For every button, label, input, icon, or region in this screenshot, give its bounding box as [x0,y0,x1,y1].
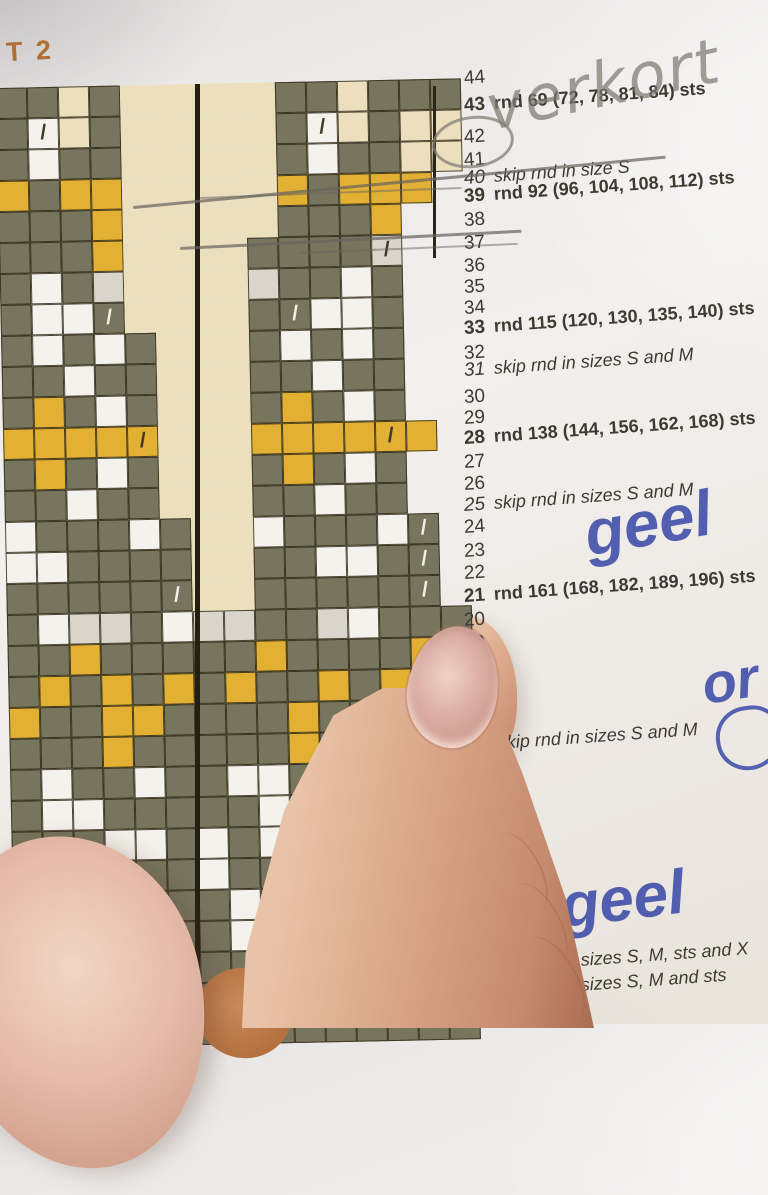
chart-cell [0,304,32,336]
chart-cell [160,518,192,550]
chart-cell [128,457,160,489]
chart-cell [244,82,276,114]
round-number: 21 [463,584,488,608]
chart-cell [378,545,410,577]
chart-cell [0,87,27,119]
round-number: 36 [463,254,488,278]
chart-cell [284,516,316,548]
chart-cell [62,272,94,304]
chart-cell [104,798,136,830]
chart-cell [221,455,253,487]
round-number: 28 [463,426,488,450]
chart-cell [214,145,246,177]
chart-cell [250,361,282,393]
chart-cell [132,643,164,675]
chart-cell [125,333,157,365]
chart-cell: / [127,426,159,458]
chart-cell [101,674,133,706]
chart-cell [0,242,31,274]
chart-cell [27,87,59,119]
chart-cell [185,239,217,271]
chart-cell [0,180,29,212]
chart-cell [6,552,38,584]
chart-cell [4,459,36,491]
chart-cell [378,576,410,608]
chart-cell [64,365,96,397]
chart-cell [126,395,158,427]
round-list-item: 24 [463,515,488,539]
round-number: 25 [463,493,488,517]
chart-cell [163,673,195,705]
chart-cell [196,765,228,797]
chart-cell [99,550,131,582]
chart-cell [94,333,126,365]
chart-cell [159,487,191,519]
chart-cell [317,639,349,671]
chart-cell [368,80,400,112]
chart-cell [379,607,411,639]
chart-cell [372,266,404,298]
chart-cell [124,271,156,303]
chart-cell [341,297,373,329]
chart-cell [197,796,229,828]
chart-cell [254,547,286,579]
chart-cell [307,143,339,175]
chart-cell [189,424,221,456]
chart-cell [35,459,67,491]
chart-cell [316,577,348,609]
round-number: 27 [463,450,488,474]
round-number: 38 [463,208,488,232]
chart-cell [254,578,286,610]
chart-cell [1,335,33,367]
chart-cell [31,273,63,305]
chart-cell [30,242,62,274]
chart-cell [255,640,287,672]
chart-cell [97,457,129,489]
chart-cell [157,363,189,395]
chart-cell [91,178,123,210]
chart-cell [31,304,63,336]
chart-panel-divider-line [195,84,200,1024]
chart-cell [131,612,163,644]
chart-cell [68,582,100,614]
chart-cell [282,423,314,455]
chart-cell [315,515,347,547]
chart-cell [341,266,373,298]
chart-cell [399,110,431,142]
chart-cell [133,736,165,768]
chart-cell [4,490,36,522]
chart-cell [164,704,196,736]
chart-cell [32,335,64,367]
chart-cell: / [306,112,338,144]
chart-cell [37,583,69,615]
decrease-slash-icon: / [292,303,298,324]
chart-cell [151,115,183,147]
chart-cell [38,614,70,646]
chart-cell [374,390,406,422]
chart-cell [11,800,43,832]
chart-cell [285,578,317,610]
chart-cell [61,241,93,273]
round-list-item: 26 [463,472,488,496]
chart-cell [250,392,282,424]
chart-cell: / [27,118,59,150]
chart-cell [34,428,66,460]
chart-cell [347,576,379,608]
round-instruction: rnd 138 (144, 156, 162, 168) sts [493,408,756,446]
chart-cell [342,328,374,360]
chart-cell [58,86,90,118]
chart-cell [5,521,37,553]
chart-cell [159,456,191,488]
round-list-item: 31skip rnd in sizes S and M [463,344,694,382]
round-number: 24 [463,515,488,539]
chart-cell [7,614,39,646]
round-number: 26 [463,472,488,496]
chart-cell [276,144,308,176]
chart-cell [126,364,158,396]
chart-cell [186,270,218,302]
chart-cell [166,797,198,829]
chart-cell [217,269,249,301]
chart-cell [184,208,216,240]
chart-cell [369,142,401,174]
chart-cell [64,396,96,428]
chart-cell [344,421,376,453]
chart-cell [36,521,68,553]
chart-cell [199,889,231,921]
chart-cell [37,552,69,584]
chart-cell [399,79,431,111]
chart-cell [281,361,313,393]
round-list-item: 30 [463,385,488,409]
chart-cell [0,211,30,243]
chart-cell [345,483,377,515]
decrease-slash-icon: / [421,548,427,569]
chart-cell [343,390,375,422]
chart-cell [60,210,92,242]
chart-cell [310,267,342,299]
chart-cell [155,301,187,333]
chart-cell [248,299,280,331]
chart-cell [40,738,72,770]
chart-cell [256,671,288,703]
round-number: 31 [463,358,488,382]
chart-cell [318,670,350,702]
chart-cell [313,422,345,454]
chart-cell [70,675,102,707]
round-number: 33 [463,316,488,340]
chart-cell [337,80,369,112]
round-number: 39 [463,184,488,208]
chart-cell [213,114,245,146]
chart-cell [73,799,105,831]
chart-cell [223,579,255,611]
chart-cell [197,827,229,859]
chart-cell [311,329,343,361]
chart-cell [279,268,311,300]
chart-right-border-line [433,86,436,258]
round-list-item: 21rnd 161 (168, 182, 189, 196) sts [463,566,756,608]
chart-cell [29,211,61,243]
chart-cell [337,111,369,143]
round-list-item: 35 [463,275,488,299]
chart-cell: / [161,580,193,612]
chart-cell [222,517,254,549]
chart-cell [96,426,128,458]
chart-title: T 2 [5,35,55,68]
chart-cell [223,548,255,580]
round-instruction: rnd 161 (168, 182, 189, 196) sts [493,566,756,604]
round-list-item: 23 [463,539,488,563]
chart-cell [275,82,307,114]
chart-cell [133,705,165,737]
chart-cell [39,645,71,677]
chart-cell [217,300,249,332]
chart-cell [71,706,103,738]
chart-cell [400,141,432,173]
chart-cell [101,643,133,675]
chart-cell [346,514,378,546]
chart-cell: / [409,575,441,607]
decrease-slash-icon: / [422,579,428,600]
chart-cell [90,147,122,179]
chart-cell [92,240,124,272]
chart-cell [213,83,245,115]
handwriting-pencil-word: verkort [479,24,727,145]
chart-cell [224,641,256,673]
chart-cell [28,149,60,181]
round-list-item: 22 [463,561,488,585]
chart-cell: / [375,421,407,453]
chart-cell [348,607,380,639]
chart-cell [258,764,290,796]
chart-cell [8,676,40,708]
chart-cell [102,736,134,768]
chart-cell: / [279,299,311,331]
chart-cell [3,428,35,460]
chart-cell [71,737,103,769]
chart-cell [370,204,402,236]
chart-cell [312,391,344,423]
round-instruction: skip rnd in sizes S and M [493,344,694,378]
chart-cell [244,113,276,145]
chart-cell [215,176,247,208]
photo-of-knitting-pattern-page: { "page": { "header": "T 2" }, "chart": … [0,0,768,1024]
chart-cell [161,549,193,581]
chart-cell [312,360,344,392]
chart-cell [220,424,252,456]
chart-cell [62,303,94,335]
chart-cell [134,767,166,799]
chart-cell [219,362,251,394]
chart-cell [58,117,90,149]
chart-cell [308,205,340,237]
chart-cell [63,334,95,366]
chart-cell [35,490,67,522]
chart-cell [224,610,256,642]
chart-cell [165,766,197,798]
decrease-slash-icon: / [140,430,146,451]
chart-cell [70,644,102,676]
chart-cell [0,118,28,150]
chart-cell [317,608,349,640]
chart-cell [216,238,248,270]
round-number: 35 [463,275,488,299]
chart-cell [40,707,72,739]
chart-cell [314,484,346,516]
chart-cell [374,359,406,391]
chart-cell [164,735,196,767]
chart-cell [0,273,31,305]
decrease-slash-icon: / [421,517,427,538]
chart-cell [130,581,162,613]
chart-cell [121,147,153,179]
chart-cell [120,116,152,148]
chart-cell [252,485,284,517]
chart-cell [128,488,160,520]
chart-cell [42,800,74,832]
chart-cell [215,207,247,239]
round-number: 23 [463,539,488,563]
chart-cell [228,796,260,828]
round-list-item: 36 [463,254,488,278]
chart-cell [246,206,278,238]
chart-cell [275,113,307,145]
decrease-slash-icon: / [319,116,325,137]
chart-cell [9,738,41,770]
chart-cell [257,733,289,765]
chart-cell [343,359,375,391]
chart-cell [135,798,167,830]
chart-cell [162,611,194,643]
chart-cell [245,144,277,176]
chart-cell [129,519,161,551]
chart-cell [338,142,370,174]
chart-cell [6,583,38,615]
chart-cell [39,676,71,708]
chart-cell [157,394,189,426]
chart-cell [130,550,162,582]
chart-cell [186,301,218,333]
chart-cell: / [408,544,440,576]
chart-cell [123,240,155,272]
chart-cell [187,332,219,364]
chart-cell [281,392,313,424]
chart-cell [153,208,185,240]
chart-cell [287,670,319,702]
chart-cell [257,702,289,734]
chart-cell [68,551,100,583]
chart-cell [188,393,220,425]
chart-cell [132,674,164,706]
decrease-slash-icon: / [106,307,112,328]
chart-cell [348,638,380,670]
chart-cell [124,302,156,334]
chart-cell [286,608,318,640]
chart-cell [95,395,127,427]
chart-cell [316,546,348,578]
decrease-slash-icon: / [388,425,394,446]
chart-cell [283,454,315,486]
chart-cell [67,520,99,552]
chart-cell [379,638,411,670]
chart-cell [122,209,154,241]
chart-cell [65,427,97,459]
chart-cell [162,642,194,674]
chart-cell [288,701,320,733]
chart-cell [95,364,127,396]
chart-cell [228,827,260,859]
chart-cell [286,639,318,671]
chart-cell [29,180,61,212]
chart-cell [195,734,227,766]
chart-cell [198,858,230,890]
chart-cell [98,519,130,551]
chart-cell [253,516,285,548]
decrease-slash-icon: / [40,122,46,143]
round-list-item: 28rnd 138 (144, 156, 162, 168) sts [463,408,756,450]
chart-cell [89,86,121,118]
chart-cell [306,81,338,113]
chart-cell [167,859,199,891]
chart-cell [100,612,132,644]
chart-cell [226,734,258,766]
chart-cell [93,271,125,303]
chart-cell [152,146,184,178]
chart-cell: / [408,513,440,545]
round-instruction: skip rnd in sizes S and M [497,719,698,753]
chart-cell [33,397,65,429]
chart-cell [69,613,101,645]
chart-cell [102,705,134,737]
chart-cell [226,703,258,735]
round-list-item: 33rnd 115 (120, 130, 135, 140) sts [463,298,755,340]
chart-cell [376,452,408,484]
chart-cell [277,206,309,238]
chart-cell [248,268,280,300]
chart-cell [103,767,135,799]
chart-cell [283,485,315,517]
chart-cell [66,458,98,490]
chart-cell [372,297,404,329]
chart-cell [345,452,377,484]
chart-cell [188,363,220,395]
chart-cell [155,270,187,302]
chart-cell [373,328,405,360]
round-list-item: 27 [463,450,488,474]
chart-cell [347,545,379,577]
chart-cell [72,768,104,800]
chart-cell [339,204,371,236]
chart-cell [156,332,188,364]
chart-cell [2,366,34,398]
chart-cell [218,331,250,363]
chart-cell [41,769,73,801]
chart-cell [2,397,34,429]
chart-cell [229,858,261,890]
chart-cell [59,148,91,180]
round-instruction: rnd 115 (120, 130, 135, 140) sts [493,298,755,336]
chart-cell [368,111,400,143]
chart-cell: / [93,302,125,334]
chart-cell [135,829,167,861]
chart-cell [219,393,251,425]
chart-cell [406,420,438,452]
chart-cell [10,769,42,801]
